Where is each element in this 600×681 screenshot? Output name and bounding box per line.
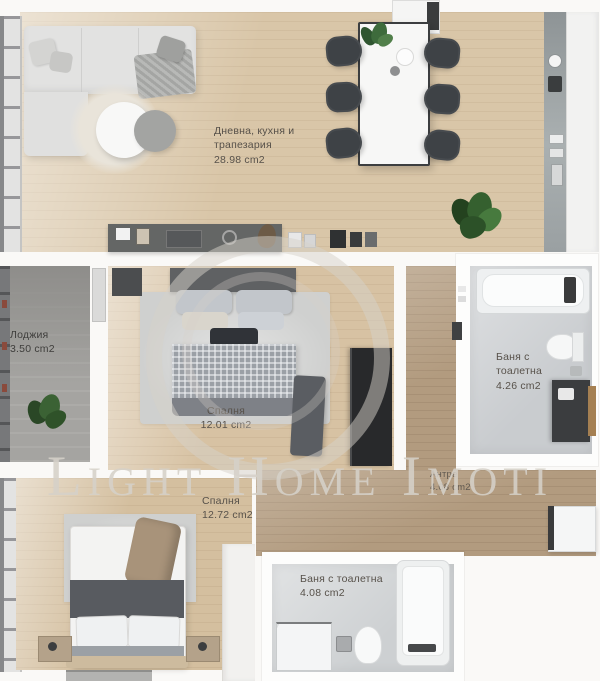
wall-frame xyxy=(350,232,362,247)
frame-detail xyxy=(2,300,7,308)
room-label-loggia: Лоджия 3.50 cm2 xyxy=(10,328,86,357)
table-cup xyxy=(390,66,400,76)
bed2-dark-stripe xyxy=(70,580,184,618)
bed2-frame xyxy=(66,656,188,668)
room-label-bedroom2: Спалня 12.72 cm2 xyxy=(202,494,268,523)
washing-machine xyxy=(548,506,596,552)
nightstand-lamp-icon xyxy=(198,642,207,651)
bathtub-tap xyxy=(408,644,436,652)
kitchen-item xyxy=(549,134,564,144)
wall-hook-item xyxy=(458,286,466,292)
bed1-pillow xyxy=(236,290,292,314)
room-area: 12.01 cm2 xyxy=(176,418,276,432)
console-frame xyxy=(116,228,130,240)
room-name: Спалня xyxy=(202,495,240,507)
bed1-checkered-blanket xyxy=(172,344,296,400)
bed1-pillow xyxy=(176,290,232,314)
loggia-floor xyxy=(0,266,90,462)
toilet xyxy=(354,626,382,664)
kitchen-sink-icon xyxy=(548,54,562,68)
wall-frame xyxy=(365,232,377,247)
room-label-bath-top: Баня с тоалетна 4.26 cm2 xyxy=(496,350,554,393)
bathtub-tap xyxy=(564,277,576,303)
hallway-floor-vertical xyxy=(406,266,456,470)
bedroom2-bottom-window xyxy=(66,670,152,681)
bedroom1-wardrobe xyxy=(350,348,392,466)
kitchen-cabinets xyxy=(566,12,599,252)
room-name: Лоджия xyxy=(10,329,48,341)
console-ring-decor xyxy=(222,230,237,245)
wall-box xyxy=(570,366,582,376)
room-area: 4.08 cm2 xyxy=(300,586,430,600)
kitchen-counter xyxy=(544,12,566,252)
room-name: Спалня xyxy=(207,405,245,417)
room-area: 4.26 cm2 xyxy=(496,379,554,393)
room-area: 3.50 cm2 xyxy=(10,342,86,356)
room-area: 4.08 cm2 xyxy=(430,481,500,494)
dining-chair xyxy=(423,83,461,115)
waste-bin xyxy=(336,636,352,652)
bed2-pillow xyxy=(127,615,180,649)
bath-door-wood xyxy=(588,386,596,436)
coffee-table-tray xyxy=(134,110,176,152)
room-name: Баня с тоалетна xyxy=(496,351,542,377)
room-name: Баня с тоалетна xyxy=(300,573,383,585)
room-name: Дневна, кухня и трапезария xyxy=(214,125,294,151)
kitchen-item xyxy=(549,148,564,158)
room-label-bath-bottom: Баня с тоалетна 4.08 cm2 xyxy=(300,572,430,601)
loggia-glass-door xyxy=(92,268,106,322)
room-label-living: Дневна, кухня и трапезария 28.98 cm2 xyxy=(214,124,318,167)
room-name: Антре xyxy=(430,469,458,480)
bedroom2-wardrobe xyxy=(222,544,255,681)
wall-frame xyxy=(288,232,302,248)
sofa-cushion-seam xyxy=(81,28,82,92)
nightstand-lamp-icon xyxy=(48,642,57,651)
room-area: 12.72 cm2 xyxy=(202,508,268,522)
kitchen-item xyxy=(551,164,563,186)
bath-vanity xyxy=(276,622,332,671)
hallway-floor-horizontal xyxy=(256,470,596,556)
bedroom1-nightstand xyxy=(112,268,142,296)
toilet-tank xyxy=(572,332,584,362)
bed2-pillow xyxy=(75,615,128,649)
bed1-side-drape xyxy=(290,375,326,457)
frame-detail xyxy=(2,384,7,392)
bed1-headboard xyxy=(170,268,296,292)
wall-hook-item xyxy=(458,296,466,302)
cooktop-icon xyxy=(548,76,562,92)
living-window-band xyxy=(0,16,22,252)
vanity-sink xyxy=(558,388,574,400)
floor-plan: Дневна, кухня и трапезария 28.98 cm2 Лод… xyxy=(0,0,600,681)
room-label-hallway: Антре 4.08 cm2 xyxy=(430,468,500,494)
hall-dark-item xyxy=(452,322,462,340)
frame-detail xyxy=(2,342,7,350)
wall-frame xyxy=(304,234,316,248)
table-plate xyxy=(396,48,414,66)
loggia-window-frame xyxy=(0,266,10,462)
room-area: 28.98 cm2 xyxy=(214,153,318,167)
room-label-bedroom1: Спалня 12.01 cm2 xyxy=(176,404,276,433)
washing-machine-edge xyxy=(548,506,554,550)
console-screen xyxy=(166,230,202,248)
wall-frame xyxy=(330,230,346,248)
console-art xyxy=(136,228,150,245)
sofa-pillow xyxy=(49,50,74,73)
